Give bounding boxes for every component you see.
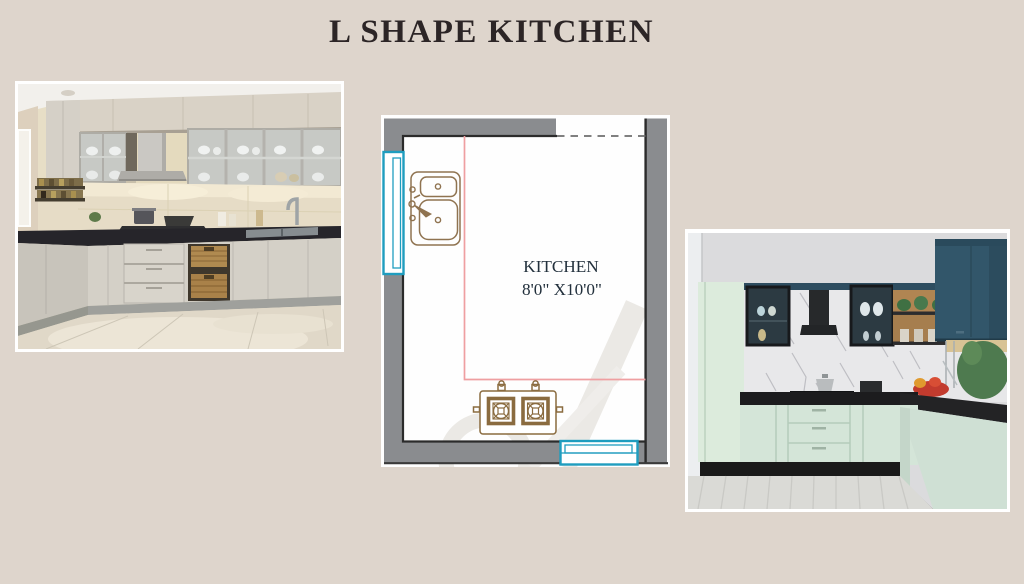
svg-text:KITCHEN: KITCHEN: [523, 257, 599, 276]
svg-text:8'0" X10'0": 8'0" X10'0": [522, 280, 602, 299]
